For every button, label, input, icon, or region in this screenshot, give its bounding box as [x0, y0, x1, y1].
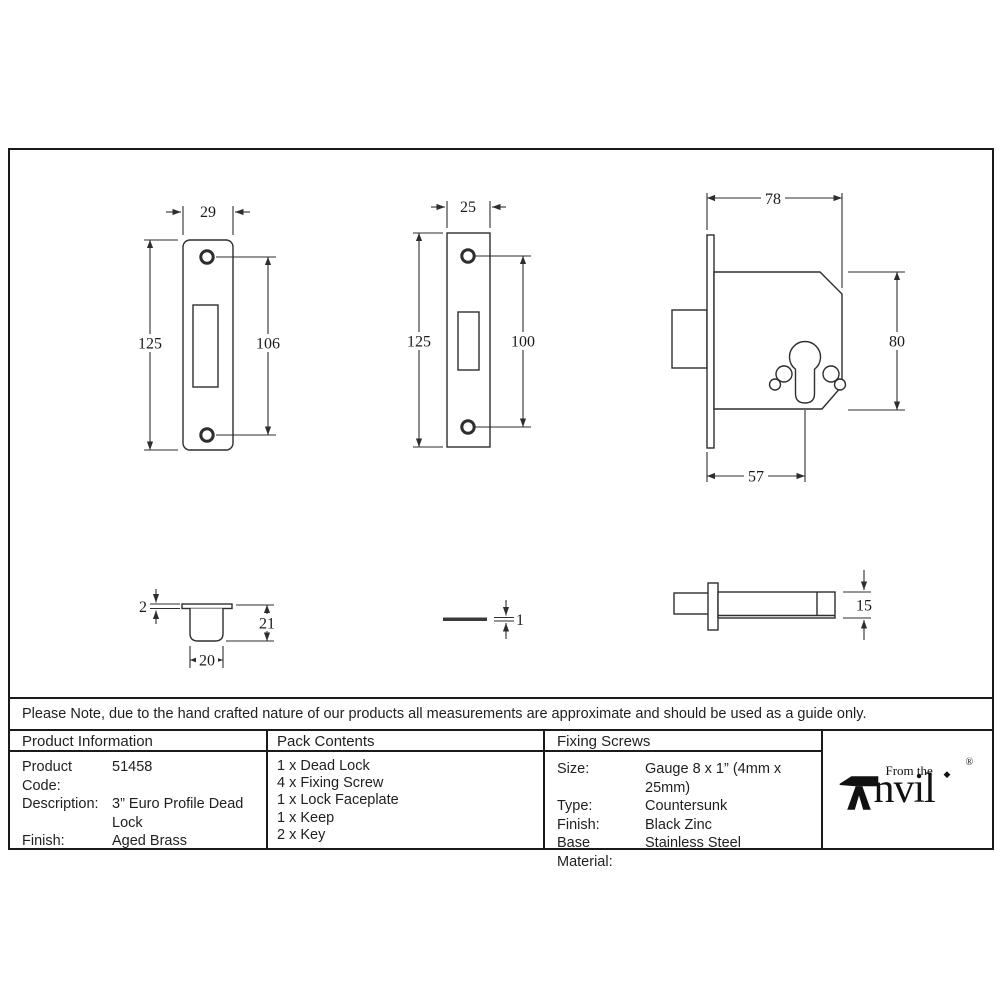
- technical-drawing-canvas: 29 125 106 25 125 100: [0, 0, 1000, 1000]
- screw-hole: [462, 421, 474, 433]
- faceplate-edge-view: 1: [443, 600, 524, 639]
- screw-hole: [201, 429, 213, 441]
- dim-label-thickness: 15: [856, 598, 872, 615]
- dim-label-height: 125: [138, 336, 162, 353]
- dim-label-thickness: 1: [516, 612, 524, 629]
- fixing-lug-hole-right: [823, 366, 839, 382]
- lock-faceplate-front-view: 29 125 106: [136, 204, 283, 450]
- keep-cup: [190, 609, 223, 642]
- faceplate-bar: [443, 618, 487, 622]
- keep-flange: [182, 604, 232, 609]
- dim-label-width: 29: [200, 204, 216, 221]
- fixing-lug-hole-left: [776, 366, 792, 382]
- dim-label-width: 25: [460, 199, 476, 216]
- keep-section-view: 2 21 20: [139, 589, 279, 670]
- dim-label-hole-spacing: 100: [511, 334, 535, 351]
- dim-label-height: 80: [889, 334, 905, 351]
- lock-body-front-view: 78 80 57: [672, 190, 910, 486]
- dim-label-flange-thickness: 2: [139, 599, 147, 616]
- dim-label-hole-spacing: 106: [256, 336, 280, 353]
- dim-label-width: 20: [199, 653, 215, 670]
- bolt: [672, 310, 707, 368]
- dim-label-depth: 21: [259, 616, 275, 633]
- bolt: [674, 593, 709, 614]
- keep-faceplate-front-view: 25 125 100: [405, 199, 538, 447]
- faceplate-edge: [707, 235, 714, 448]
- dim-label-backset: 57: [748, 469, 764, 486]
- dim-label-width: 78: [765, 191, 781, 208]
- screw-hole: [462, 250, 474, 262]
- lock-body-top-view: 15: [674, 570, 872, 640]
- bolt-cutout: [193, 305, 218, 387]
- faceplate-edge: [708, 583, 718, 630]
- dim-label-height: 125: [407, 334, 431, 351]
- bolt-cutout: [458, 312, 479, 370]
- screw-hole: [201, 251, 213, 263]
